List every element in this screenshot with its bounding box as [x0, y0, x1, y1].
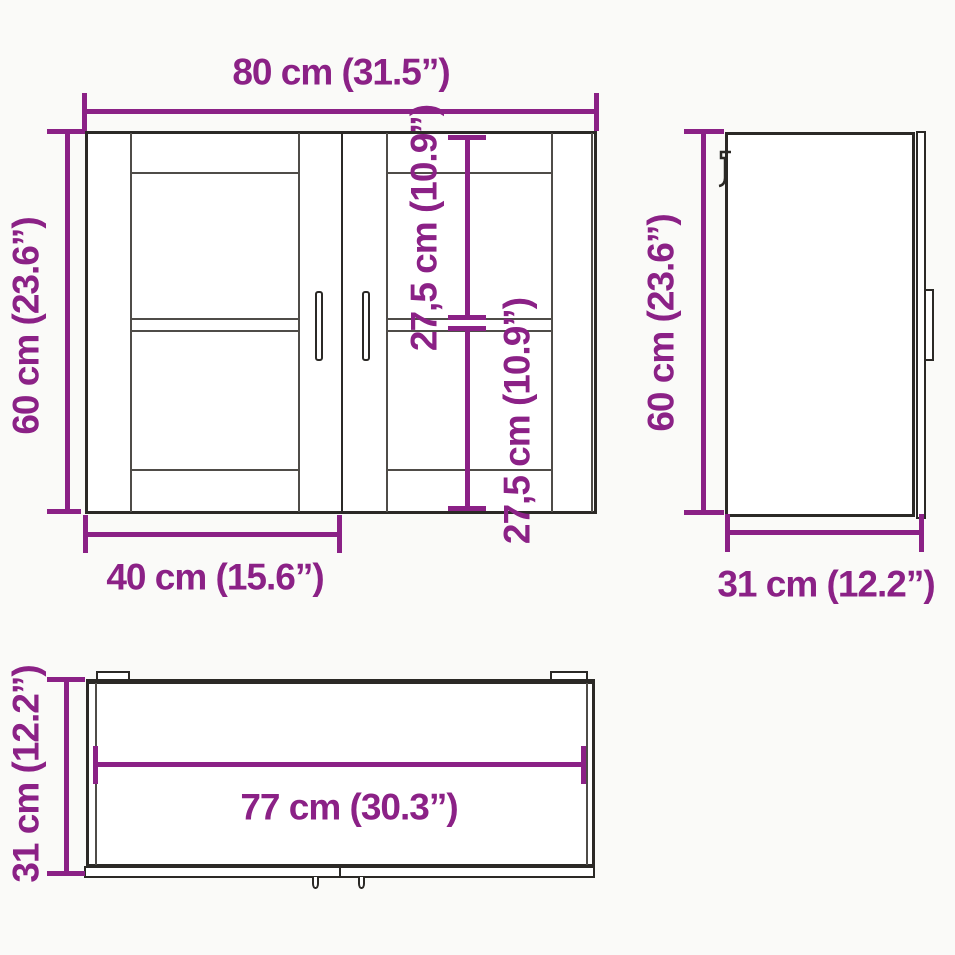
top-view-dimensions: 31 cm (12.2”) 77 cm (30.3”) — [0, 0, 955, 955]
dim-inner-width-tick-left — [93, 746, 98, 784]
cabinet-dimension-diagram: 80 cm (31.5”) 60 cm (23.6”) 27,5 cm (10.… — [0, 0, 955, 955]
dim-inner-width-line — [96, 762, 585, 767]
dim-top-depth-line — [64, 679, 69, 875]
dim-top-depth-tick-top — [47, 677, 85, 682]
dim-top-depth-label: 31 cm (12.2”) — [8, 665, 45, 882]
dim-top-depth-tick-bottom — [47, 871, 85, 876]
dim-inner-width-label: 77 cm (30.3”) — [240, 789, 457, 826]
dim-inner-width-tick-right — [581, 746, 586, 784]
